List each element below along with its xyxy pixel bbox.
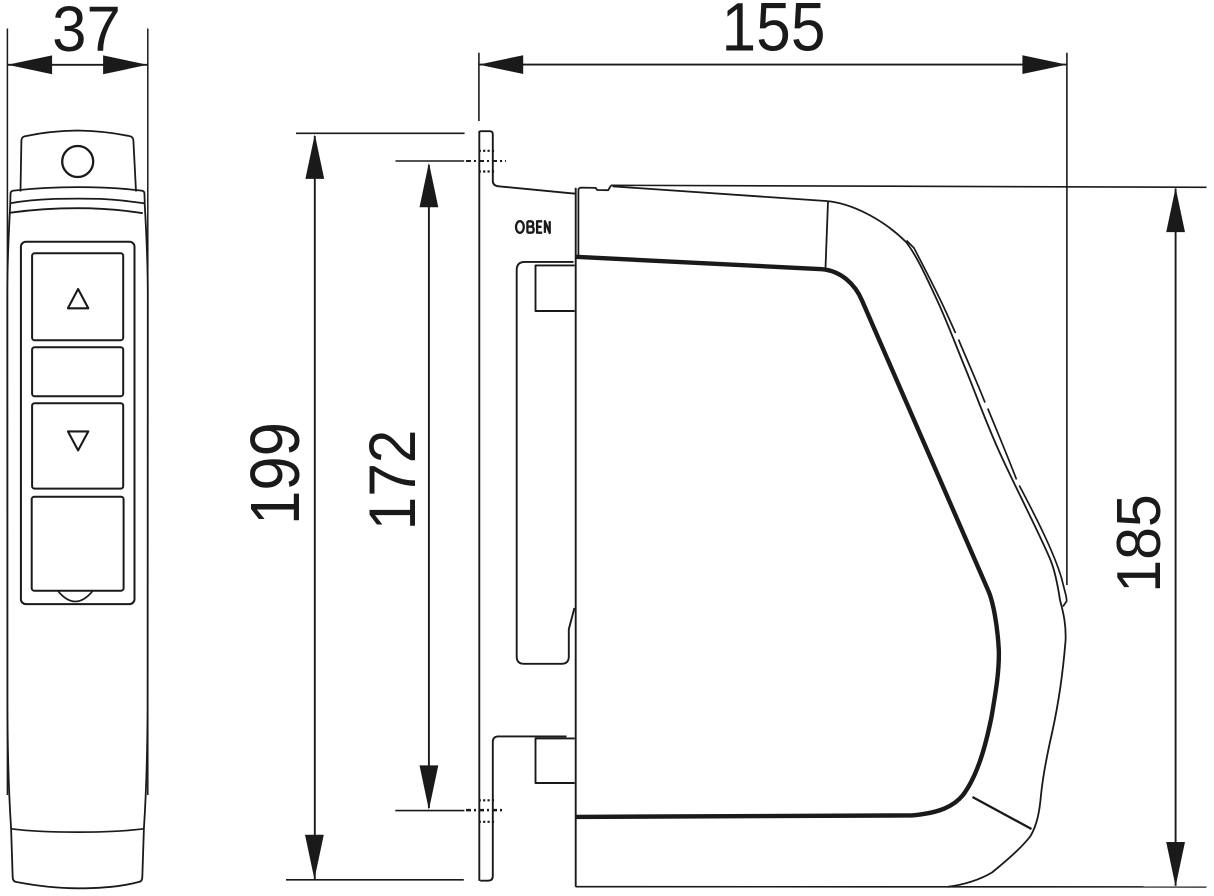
svg-text:155: 155: [722, 0, 826, 66]
svg-text:185: 185: [1105, 494, 1174, 593]
svg-text:199: 199: [236, 422, 314, 525]
svg-text:172: 172: [355, 430, 429, 531]
svg-text:37: 37: [52, 0, 121, 65]
